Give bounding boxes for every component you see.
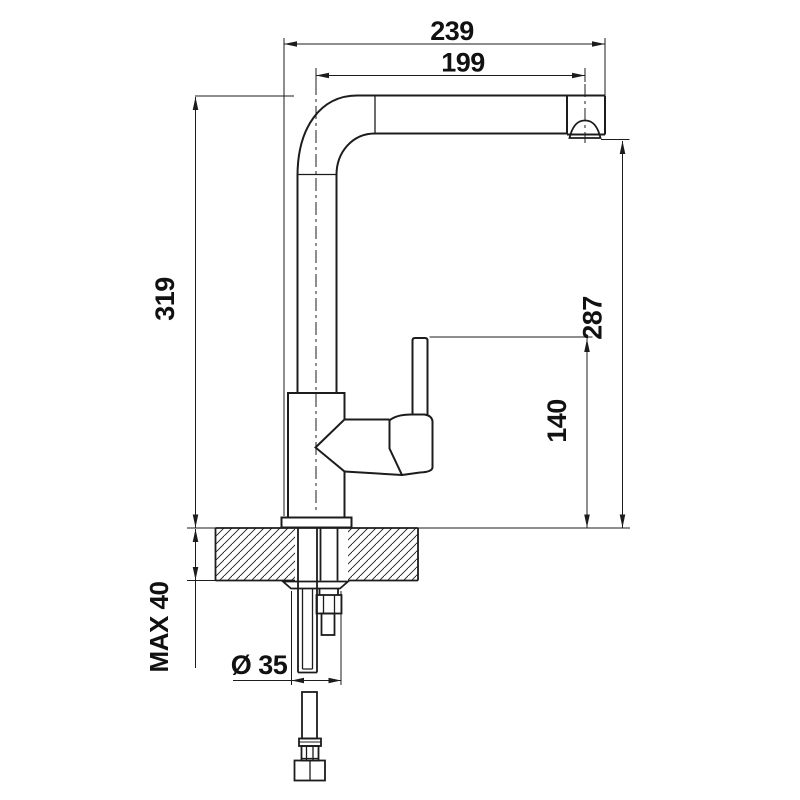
centerlines [316,82,585,514]
arrow-239-left [284,41,297,47]
label-max-mounting-thickness: MAX 40 [144,582,174,673]
countertop-hatch-right [348,528,418,581]
label-hole-diameter: Ø 35 [231,650,288,680]
arrow-dia35-right [329,678,342,684]
dimension-arrowheads [193,41,626,683]
label-spout-reach: 199 [441,48,485,78]
shank-below-washer [320,589,339,596]
arrow-199-left [316,73,329,79]
threaded-rod-end [322,614,335,636]
arrow-140-bottom [584,515,590,528]
arrow-140-top [584,339,590,352]
hose-guide-tube [298,528,317,673]
faucet-dimension-diagram: 239 199 319 287 140 MAX 40 Ø 35 [0,0,800,800]
handle-cap [390,415,433,476]
arrow-287-bottom [620,515,626,528]
hose-connector-hex-flats [302,746,319,761]
arrow-319-top [193,97,199,110]
arrow-max40-bottom [193,567,199,580]
base-flange [282,518,352,528]
arrow-239-right [592,41,605,47]
hose-connector-tube [302,692,317,739]
mounting-washer [283,582,348,589]
spout-outer-edge [298,96,606,177]
spout-inner-edge [337,134,568,176]
dimension-lines [196,44,623,681]
arrow-319-bottom [193,515,199,528]
handle-cone-bottom [345,472,403,476]
technical-drawing-canvas: 239 199 319 287 140 MAX 40 Ø 35 [0,0,800,800]
arrow-dia35-left [292,678,305,684]
label-outlet-height: 287 [578,296,608,340]
mounting-nut-flats [324,595,335,614]
arrow-287-top [620,141,626,154]
mounting-nut [317,595,342,614]
countertop-hatch-left [216,528,296,581]
faucet-outline [282,96,606,528]
extension-lines [187,38,630,685]
handle-assembly [345,338,433,475]
label-total-projection: 239 [430,16,474,46]
threaded-shank [321,528,338,581]
riser-pipe [298,175,337,394]
arrow-199-right [572,73,585,79]
label-handle-height: 140 [542,399,572,443]
hose-guide-bore [303,589,313,669]
arrow-max40-top [193,529,199,542]
label-total-height: 319 [150,277,180,321]
handle-lever [413,338,428,415]
hose-connector [295,692,326,781]
